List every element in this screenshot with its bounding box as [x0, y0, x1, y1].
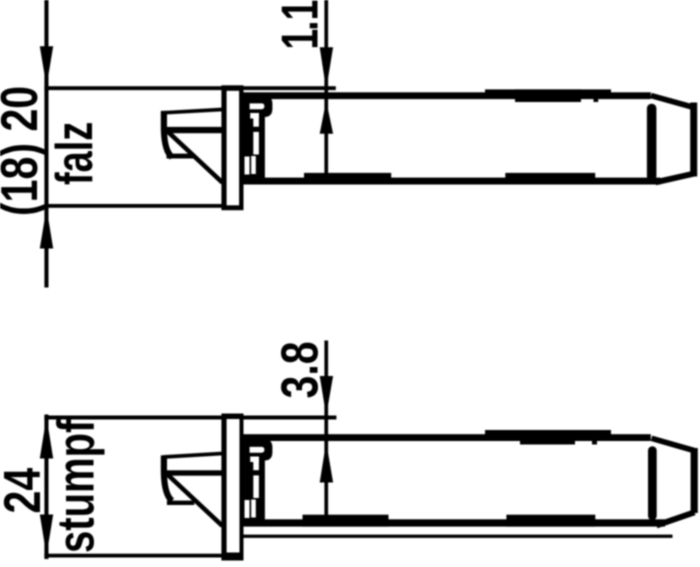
svg-text:stumpf: stumpf — [47, 419, 105, 553]
svg-text:1.1: 1.1 — [270, 0, 329, 50]
svg-text:24: 24 — [0, 468, 51, 514]
svg-text:3.8: 3.8 — [271, 341, 329, 398]
svg-text:(18) 20: (18) 20 — [0, 86, 48, 216]
svg-text:falz: falz — [45, 122, 103, 185]
